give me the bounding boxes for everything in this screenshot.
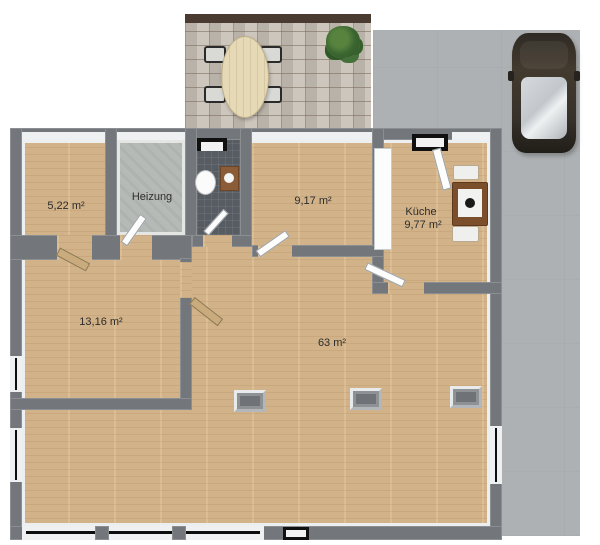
window-recess-522	[22, 132, 105, 140]
bottom-door-threshold	[283, 527, 309, 540]
pillar-middle	[350, 388, 382, 410]
wall-1316-bottom	[10, 398, 192, 410]
car	[512, 33, 576, 153]
room-label-kueche-area: 9,77 m²	[404, 219, 441, 231]
kitchen-table-icon	[452, 182, 488, 226]
kitchen-chair-icon	[453, 165, 479, 180]
window-recess-917	[252, 132, 372, 140]
pillar-right	[450, 386, 482, 408]
door-opening-1316	[180, 262, 192, 298]
side-mirror-icon	[508, 71, 514, 81]
wall-between-wc-917	[240, 128, 252, 240]
sink-basin-icon	[224, 173, 234, 183]
kitchen-chair-icon	[452, 226, 479, 242]
wall-hall-top-left	[10, 235, 192, 260]
bowl-icon	[465, 198, 475, 208]
sink-vanity-icon	[220, 166, 239, 191]
room-label-63: 63 m²	[318, 337, 346, 349]
car-hood	[520, 41, 568, 69]
dining-table-icon	[221, 36, 269, 118]
terrace-beam	[185, 14, 371, 23]
window-recess-heizung	[117, 132, 185, 140]
window-glazing-icon	[495, 428, 497, 482]
front-door-threshold	[412, 134, 448, 151]
toilet-icon	[195, 170, 216, 195]
window-mullion	[172, 526, 186, 540]
window-mullion	[95, 526, 109, 540]
room-label-kueche: Küche	[405, 206, 436, 218]
driveway-right	[500, 130, 580, 536]
room-label-522: 5,22 m²	[47, 200, 84, 212]
room-label-1316: 13,16 m²	[79, 316, 122, 328]
pillar-left	[234, 390, 266, 412]
terrace-door-threshold	[197, 138, 227, 151]
interior-wood-floor	[22, 140, 490, 526]
heizung-floor	[117, 140, 185, 235]
wardrobe	[374, 148, 392, 250]
car-glass-roof	[521, 77, 567, 139]
wall-between-522-heizung	[105, 128, 117, 240]
window-glazing-icon	[26, 531, 260, 534]
door-opening-wc	[203, 235, 232, 247]
window-recess-kueche	[452, 132, 490, 140]
room-label-heizung: Heizung	[132, 191, 172, 203]
floor-plan-canvas: 5,22 m² Heizung 9,17 m² Küche 9,77 m² 13…	[0, 0, 600, 545]
potted-plant-icon	[326, 26, 360, 58]
door-opening-kueche	[388, 282, 424, 294]
window-glazing-icon	[15, 358, 17, 390]
window-glazing-icon	[15, 430, 17, 480]
side-mirror-icon	[574, 71, 580, 81]
room-label-917: 9,17 m²	[294, 195, 331, 207]
